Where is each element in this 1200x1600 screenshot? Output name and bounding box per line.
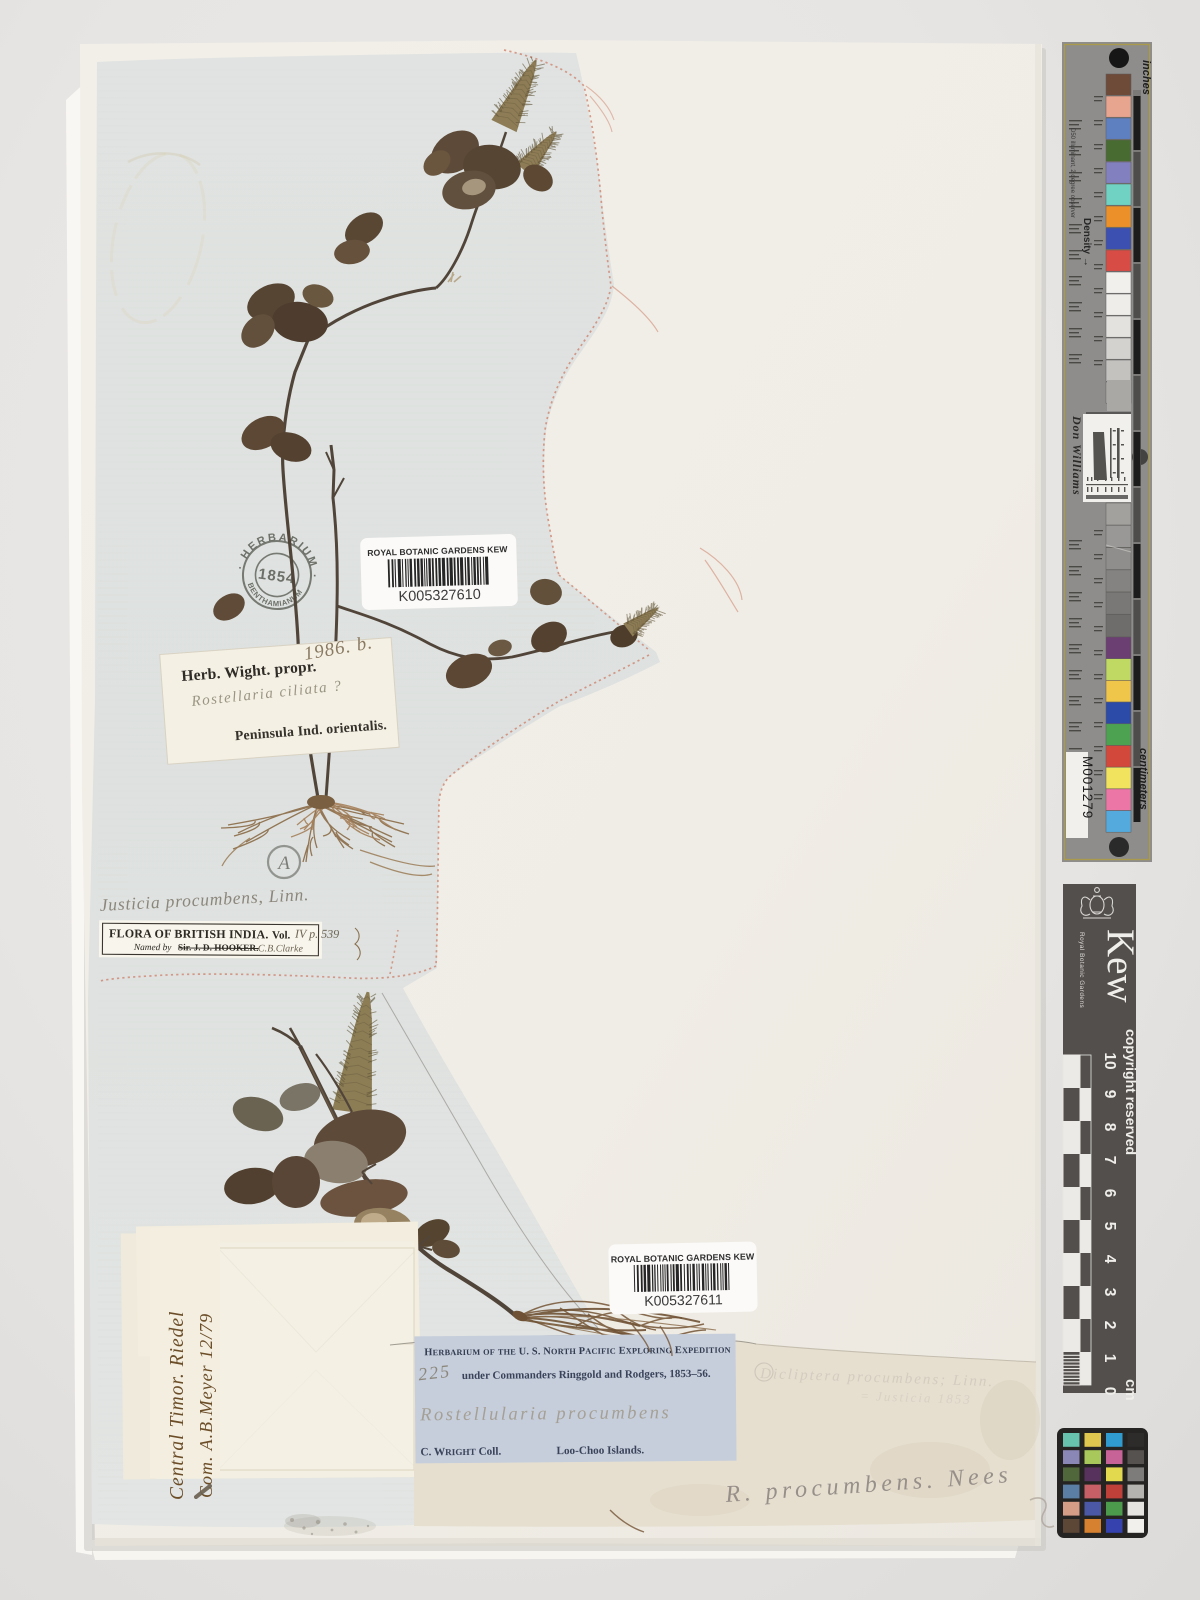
svg-text:Kew: Kew <box>1099 929 1142 1003</box>
svg-text:copyright reserved: copyright reserved <box>1123 1029 1139 1155</box>
svg-text:7: 7 <box>1101 1156 1118 1165</box>
svg-text:under Commanders Ringgold and: under Commanders Ringgold and Rodgers, 1… <box>462 1368 711 1382</box>
svg-text:D50 illuminant, 2 degree obser: D50 illuminant, 2 degree observer <box>1069 128 1075 218</box>
svg-text:Loo-Choo Islands.: Loo-Choo Islands. <box>556 1444 644 1457</box>
svg-text:6: 6 <box>1101 1189 1118 1198</box>
svg-text:K005327611: K005327611 <box>644 1291 723 1309</box>
svg-text:K005327610: K005327610 <box>398 587 481 605</box>
svg-text:Don Williams: Don Williams <box>1070 415 1084 496</box>
svg-text:Sir. J. D. HOOKER.: Sir. J. D. HOOKER. <box>178 943 259 954</box>
svg-text:inches: inches <box>1140 60 1152 95</box>
svg-text:Density →: Density → <box>1081 218 1092 267</box>
svg-text:Vol.: Vol. <box>272 929 291 941</box>
svg-text:centimeters: centimeters <box>1137 748 1149 810</box>
svg-text:5: 5 <box>1101 1222 1118 1231</box>
svg-text:2: 2 <box>1101 1321 1118 1330</box>
svg-text:3: 3 <box>1101 1288 1118 1297</box>
svg-text:Royal Botanic Gardens: Royal Botanic Gardens <box>1078 932 1085 1008</box>
svg-text:0: 0 <box>1101 1387 1118 1396</box>
svg-text:8: 8 <box>1101 1123 1118 1132</box>
svg-text:Com. A.B.Meyer 12/79: Com. A.B.Meyer 12/79 <box>196 1313 216 1498</box>
svg-text:M001279: M001279 <box>1080 756 1095 819</box>
svg-text:FLORA OF BRITISH INDIA.: FLORA OF BRITISH INDIA. <box>109 926 269 941</box>
svg-text:Named by: Named by <box>133 943 172 953</box>
svg-text:9: 9 <box>1101 1090 1118 1099</box>
svg-text:IV p. 539: IV p. 539 <box>294 927 339 941</box>
svg-text:A: A <box>276 853 290 874</box>
svg-text:4: 4 <box>1101 1255 1118 1264</box>
svg-text:Central Timor. Riedel: Central Timor. Riedel <box>167 1311 188 1500</box>
svg-text:225: 225 <box>417 1361 452 1385</box>
svg-text:10: 10 <box>1101 1052 1118 1069</box>
svg-text:Rostellularia procumbens: Rostellularia procumbens <box>419 1403 671 1425</box>
svg-text:cm: cm <box>1122 1379 1139 1401</box>
svg-text:C. WRIGHT Coll.: C. WRIGHT Coll. <box>420 1446 501 1459</box>
svg-text:1: 1 <box>1101 1354 1118 1363</box>
svg-text:C.B.Clarke: C.B.Clarke <box>258 943 304 954</box>
